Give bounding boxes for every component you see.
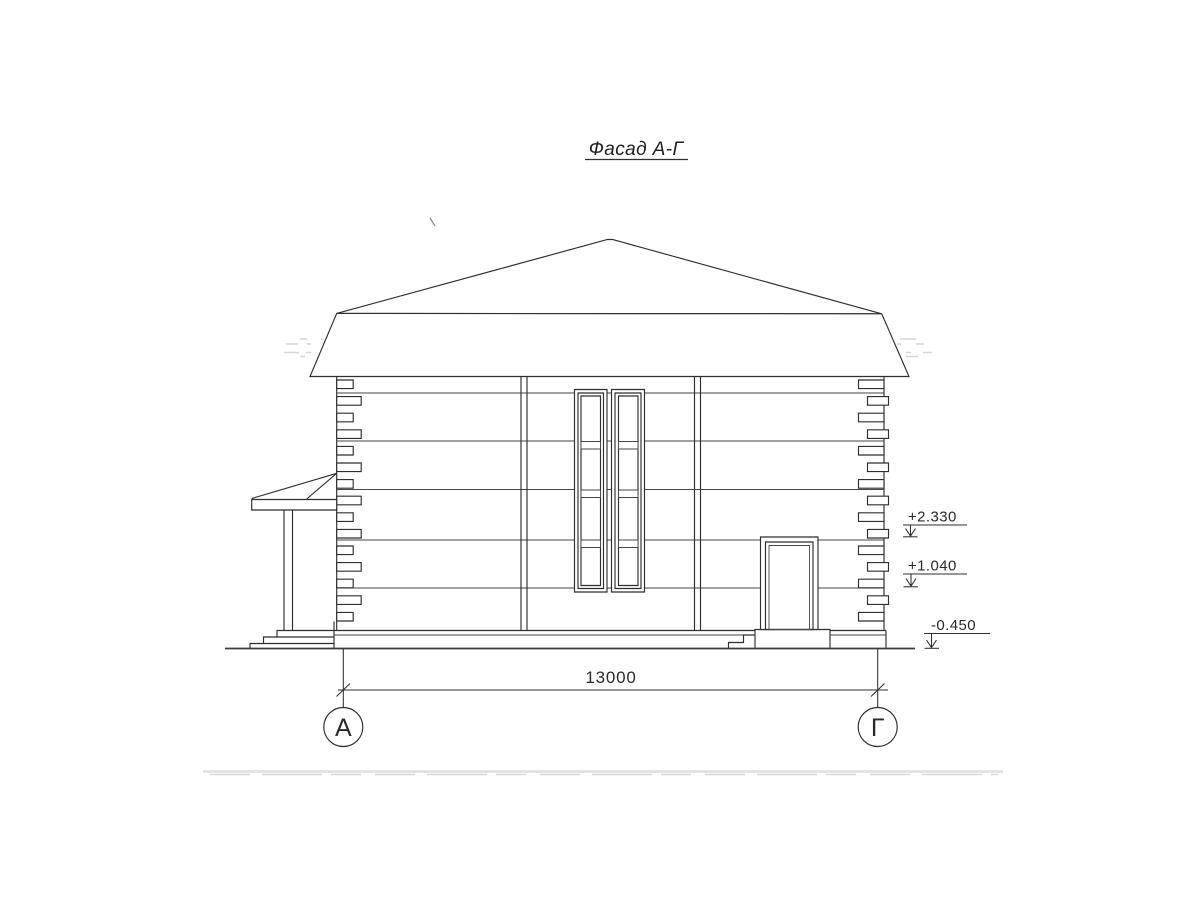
dimension: 13000	[337, 649, 889, 708]
canopy-slope-edge	[252, 473, 337, 498]
elevation-value: -0.450	[931, 617, 976, 634]
axis-marker-a: А	[324, 708, 363, 747]
window-muntin	[581, 442, 601, 450]
axis-label-g: Г	[871, 714, 885, 742]
corner-log-ends-right	[859, 380, 889, 621]
door	[761, 537, 819, 630]
facade-elevation-drawing: Фасад А-Г	[0, 0, 1200, 900]
elevation-mark-0450: -0.450	[924, 617, 990, 648]
roof-eaves-band	[310, 313, 909, 376]
landing-steps	[729, 635, 756, 649]
axis-label-a: А	[335, 714, 352, 742]
axis-marker-g: Г	[858, 708, 897, 747]
window-muntin	[581, 540, 601, 548]
elevation-mark-1040: +1.040	[903, 558, 967, 587]
step-tread	[277, 631, 334, 638]
step-tread	[264, 637, 335, 644]
elevation-value: +1.040	[908, 558, 957, 575]
roof	[310, 240, 909, 377]
window-muntin	[581, 490, 601, 498]
wall-crossing-strip-right	[695, 377, 701, 631]
roof-upper-slope	[337, 240, 882, 314]
drawing-title: Фасад А-Г	[589, 139, 685, 160]
corner-log-ends-left	[337, 380, 362, 621]
window-muntin	[619, 540, 639, 548]
elevation-value: +2.330	[908, 509, 957, 526]
wall-crossing-strip-left	[521, 377, 527, 631]
window-left	[575, 390, 608, 593]
elevation-mark-2330: +2.330	[903, 509, 967, 537]
entrance-steps-left	[250, 631, 334, 649]
landing-slab	[755, 630, 830, 649]
window-right	[612, 390, 645, 593]
window-muntin	[619, 442, 639, 450]
porch-canopy	[252, 473, 337, 630]
door-landing	[729, 630, 831, 649]
dimension-value: 13000	[585, 668, 636, 687]
scan-speck	[430, 218, 435, 226]
scanned-drawing-page: Фасад А-Г	[0, 0, 1200, 900]
canopy-fascia	[252, 500, 337, 511]
window-muntin	[619, 490, 639, 498]
